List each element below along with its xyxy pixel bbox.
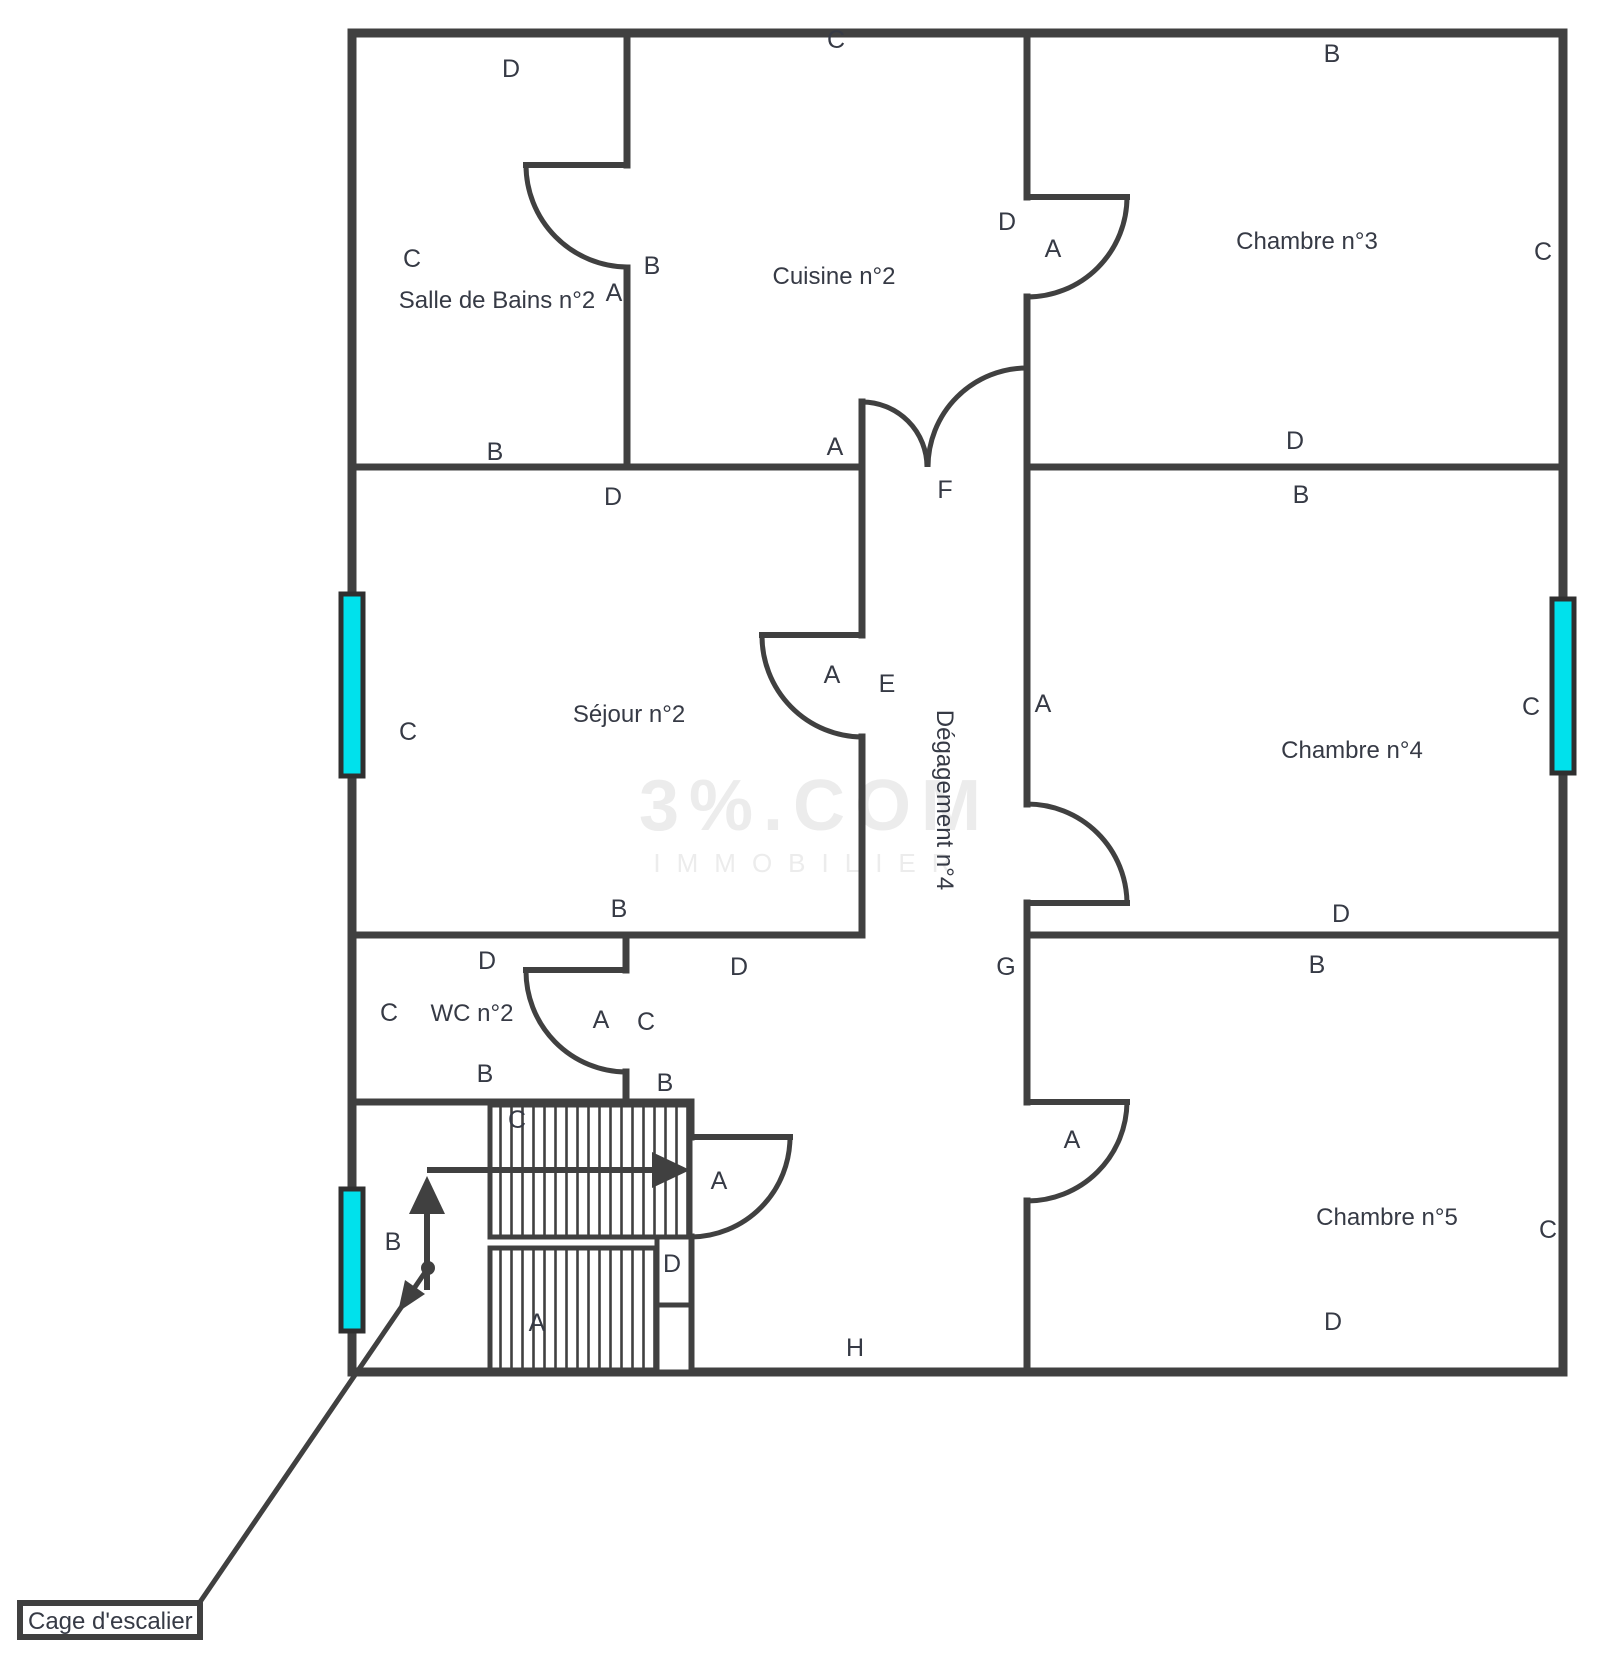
wall-letter-label-b-30: B <box>657 1069 674 1097</box>
stairwell-leader-arrowhead <box>398 1280 425 1312</box>
stairs-up-arrow-head <box>409 1176 445 1214</box>
door-arc-wc <box>526 970 626 1072</box>
wall-letter-label-a-33: A <box>711 1167 728 1195</box>
room-label-salle-de-bains-2: Salle de Bains n°2 <box>399 287 595 314</box>
wall-letter-label-b-25: B <box>1309 951 1326 979</box>
wall-letter-label-c-3: C <box>403 245 421 273</box>
stairs-lower-flight <box>490 1248 657 1372</box>
stairwell-leader-dot <box>421 1261 435 1275</box>
wall-letter-label-g-24: G <box>996 953 1015 981</box>
window-chambre4-right <box>1552 599 1574 773</box>
wall-letter-label-b-29: B <box>477 1060 494 1088</box>
wall-letter-label-c-28: C <box>637 1008 655 1036</box>
room-label-degagement-4: Dégagement n°4 <box>931 710 958 890</box>
wall-letter-label-b-4: B <box>644 252 661 280</box>
wall-letter-label-b-2: B <box>1324 40 1341 68</box>
wall-letter-label-c-31: C <box>508 1106 526 1134</box>
wall-letter-label-d-39: D <box>1324 1308 1342 1336</box>
room-label-chambre-4: Chambre n°4 <box>1281 737 1423 764</box>
room-label-chambre-3: Chambre n°3 <box>1236 228 1378 255</box>
window-sejour-left <box>341 594 363 776</box>
wall-letter-label-d-12: D <box>604 483 622 511</box>
door-arc-bathroom <box>526 165 627 267</box>
floor-plan-page: 3%.COM IMMOBILIER <box>0 0 1600 1673</box>
door-arc-chambre3 <box>1027 197 1127 297</box>
wall-letter-label-a-27: A <box>593 1006 610 1034</box>
wall-letter-label-c-19: C <box>1522 693 1540 721</box>
wall-letter-label-a-16: A <box>824 661 841 689</box>
wall-letter-label-a-35: A <box>529 1309 546 1337</box>
wall-letter-label-b-32: B <box>385 1228 402 1256</box>
door-arc-kitchen-left <box>862 402 927 467</box>
stairwell-leader-line <box>198 1268 428 1605</box>
room-label-wc-2: WC n°2 <box>431 1000 514 1027</box>
wall-letter-label-d-0: D <box>502 55 520 83</box>
wall-letter-label-d-11: D <box>1286 427 1304 455</box>
floor-plan-diagram: 3%.COM IMMOBILIER <box>0 0 1600 1673</box>
wall-letter-label-a-10: A <box>827 433 844 461</box>
door-arc-chambre4 <box>1027 804 1127 903</box>
stairwell-callout: Cage d'escalier <box>20 1261 435 1637</box>
wall-letter-label-e-17: E <box>879 670 896 698</box>
wall-letter-label-c-1: C <box>827 26 845 54</box>
wall-letter-label-a-5: A <box>606 279 623 307</box>
wall-letter-label-d-6: D <box>998 208 1016 236</box>
wall-letter-label-b-20: B <box>611 895 628 923</box>
stairs <box>409 1105 691 1372</box>
wall-letter-label-a-37: A <box>1064 1126 1081 1154</box>
wall-letter-label-d-34: D <box>663 1250 681 1278</box>
room-label-cuisine-2: Cuisine n°2 <box>773 263 896 290</box>
wall-letter-label-h-36: H <box>846 1334 864 1362</box>
wall-letter-label-d-23: D <box>730 953 748 981</box>
wall-letter-label-f-13: F <box>937 476 952 504</box>
wall-letter-label-c-8: C <box>1534 238 1552 266</box>
wall-letter-label-a-7: A <box>1045 235 1062 263</box>
stairs-landing-box-lower <box>657 1305 691 1372</box>
door-arc-sejour <box>762 635 862 737</box>
wall-letter-label-a-18: A <box>1035 690 1052 718</box>
wall-letter-label-b-14: B <box>1293 481 1310 509</box>
wall-letter-label-c-26: C <box>380 999 398 1027</box>
wall-letter-label-d-22: D <box>478 947 496 975</box>
stairwell-label: Cage d'escalier <box>28 1608 193 1635</box>
wall-letter-label-c-15: C <box>399 718 417 746</box>
room-label-sejour-2: Séjour n°2 <box>573 701 685 728</box>
wall-letter-label-b-9: B <box>487 438 504 466</box>
wall-letter-label-c-38: C <box>1539 1216 1557 1244</box>
window-stairs-left <box>341 1189 363 1331</box>
door-arc-stairwell <box>691 1137 790 1237</box>
watermark-line2: IMMOBILIER <box>653 848 966 878</box>
wall-letter-label-d-21: D <box>1332 900 1350 928</box>
room-label-chambre-5: Chambre n°5 <box>1316 1204 1458 1231</box>
door-arc-kitchen-right <box>928 368 1027 467</box>
